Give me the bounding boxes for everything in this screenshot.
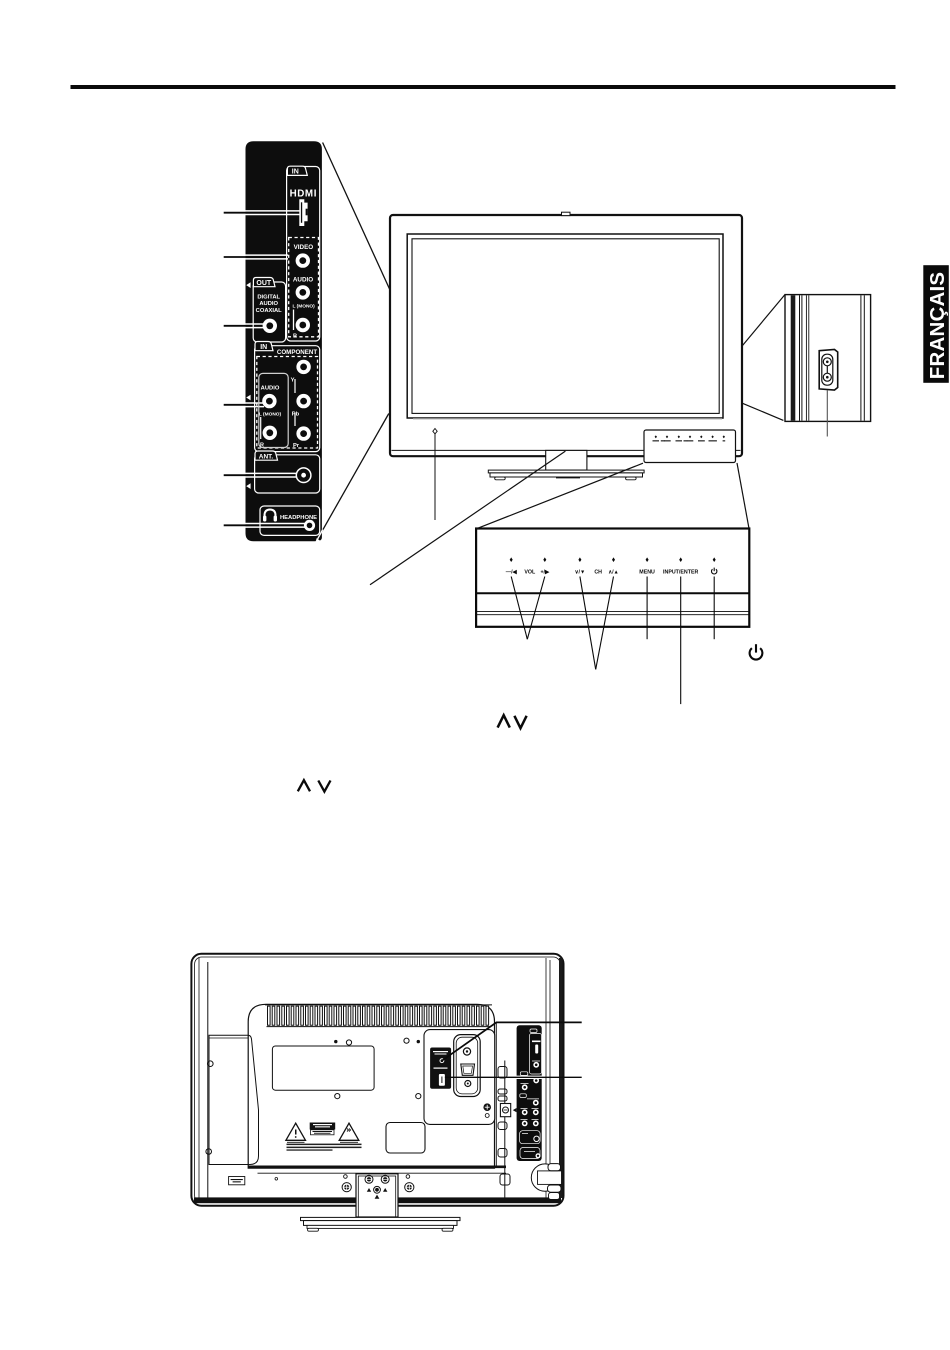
svg-text:R: R [293,334,297,340]
svg-text:AUDIO: AUDIO [259,301,278,307]
svg-text:IN: IN [260,344,267,351]
svg-text:Pr: Pr [293,443,300,449]
svg-text:INPUT/ENTER: INPUT/ENTER [663,570,698,576]
svg-text:COAXIAL: COAXIAL [256,308,283,314]
svg-text:AUDIO: AUDIO [261,386,280,392]
svg-text:OUT: OUT [256,280,272,287]
svg-text:Pb: Pb [292,412,300,418]
svg-text:IN: IN [292,169,299,176]
svg-text:R: R [260,443,264,449]
svg-text:DIGITAL: DIGITAL [257,295,280,301]
svg-text:AUDIO: AUDIO [293,277,313,284]
svg-text:HEADPHONE: HEADPHONE [280,515,317,521]
svg-text:ANT.: ANT. [259,454,274,461]
svg-text:∧/▲: ∧/▲ [608,570,619,576]
svg-text:VIDEO: VIDEO [294,244,314,251]
svg-text:FRANÇAIS: FRANÇAIS [926,272,949,380]
svg-text:Y: Y [291,378,295,384]
svg-text:L (MONO): L (MONO) [292,304,315,310]
svg-text:+/▶: +/▶ [540,570,550,576]
svg-text:∨/▼: ∨/▼ [575,570,586,576]
svg-text:L (MONO): L (MONO) [259,412,282,418]
svg-text:—/◀: —/◀ [506,570,517,576]
svg-text:HDMI: HDMI [290,189,317,200]
svg-text:CH: CH [594,570,602,576]
svg-text:MENU: MENU [639,570,655,576]
svg-text:VOL: VOL [524,570,536,576]
svg-text:COMPONENT: COMPONENT [277,349,317,356]
